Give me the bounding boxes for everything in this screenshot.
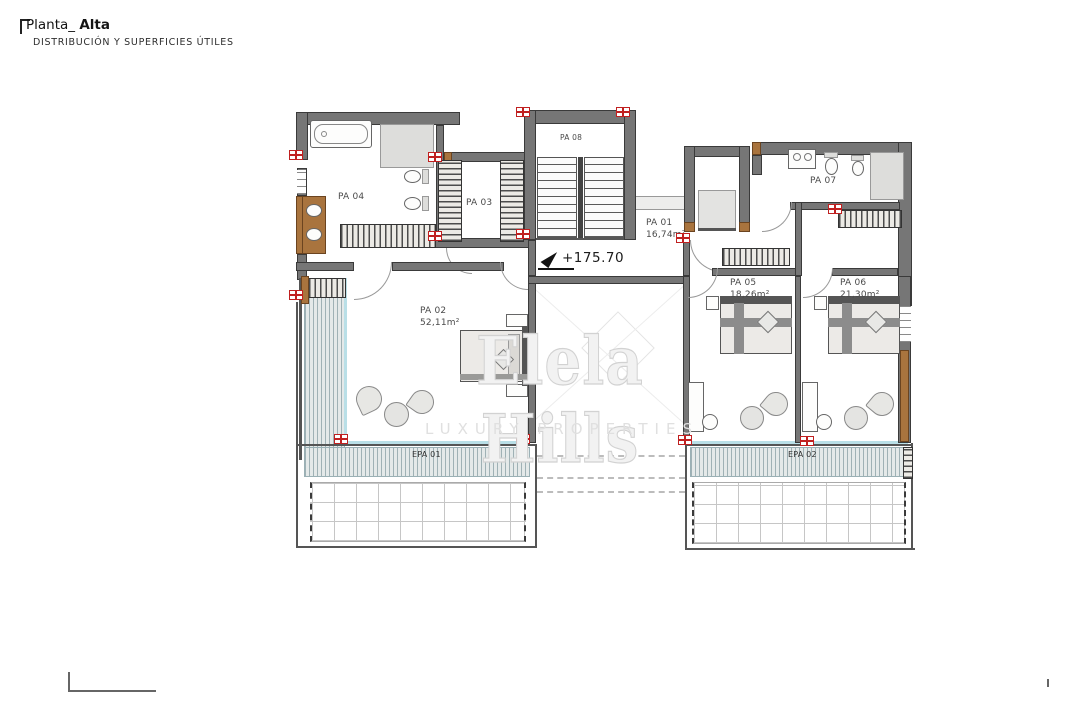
balcony-decking [304,278,345,458]
coffee-table-symbol [384,402,409,427]
room-name: PA 06 [840,278,880,290]
room-name: PA 05 [730,278,770,290]
watermark-tagline: LUXURY PROPERTIES [412,420,712,438]
terrace-boundary [685,548,915,550]
armchair-symbol [759,387,793,421]
window-symbol [899,306,911,342]
floor-plan-page: Planta_ Alta DISTRIBUCIÓN Y SUPERFICIES … [0,0,1080,702]
wall-segment [392,262,504,271]
terrace-boundary [296,302,298,548]
wood-cladding [752,142,761,155]
elevator-wall [684,146,695,232]
terrace-label-epa01: EPA 01 [412,450,441,460]
pergola-grid [692,482,906,544]
toilet-symbol [825,158,838,175]
wall-segment [795,202,802,276]
toilet-symbol [852,161,864,176]
shower-symbol [870,152,904,200]
registration-mark-icon [289,290,303,300]
room-name: PA 02 [420,306,460,318]
corner-mark [68,690,156,692]
registration-mark-icon [800,436,814,446]
bed-band [842,303,852,354]
desk-chair-symbol [816,414,832,430]
page-subtitle: DISTRIBUCIÓN Y SUPERFICIES ÚTILES [33,37,234,48]
bed-band [828,318,900,327]
stair-sill [536,238,624,240]
stair-flight [537,157,577,238]
bed-band [720,318,792,327]
level-arrow-base [538,268,574,270]
elevator-wall [739,146,750,232]
wall-segment [528,276,690,284]
level-arrow-icon [541,248,560,268]
stair-stringer [578,157,583,238]
room-label-pa04: PA 04 [338,192,364,204]
terrace-boundary [535,445,537,548]
elevator-car [698,190,736,230]
sink-symbol [306,228,322,241]
room-area: 21,30m² [840,290,880,302]
terrace-boundary [685,445,687,550]
terrace-label-epa02: EPA 02 [788,450,817,460]
door-arc [688,268,718,298]
bed-band [734,303,744,354]
page-title: Planta_ Alta [26,17,110,33]
basin-symbol [804,153,812,161]
wardrobe-symbol [438,160,462,242]
wall-segment [712,268,796,276]
armchair-symbol [352,382,387,417]
corridor-link [636,196,684,210]
page-title-emphasis: Alta [79,17,110,33]
registration-mark-icon [616,107,630,117]
registration-mark-icon [828,204,842,214]
corner-mark [68,672,70,692]
stair-flight [584,157,624,238]
wardrobe-symbol [340,224,436,248]
corner-tick [1047,679,1049,687]
wall-segment [832,268,898,276]
bed-footband [460,374,528,380]
window-symbol [297,170,306,194]
washbasin-cabinet [788,149,816,169]
page-title-prefix: Planta_ [26,17,75,33]
facade-sill [685,444,913,446]
sink-symbol [306,204,322,217]
projection-line [537,491,685,493]
glazing-line [344,278,347,442]
registration-mark-icon [678,435,692,445]
bathtub-drain [321,131,327,137]
basin-symbol [793,153,801,161]
shower-symbol [380,124,434,168]
desk-chair-symbol [702,414,718,430]
armchair-symbol [405,385,438,418]
balcony-bench [308,278,346,298]
wall-segment [795,276,801,443]
wall-segment [524,110,536,240]
wardrobe-symbol [722,248,790,266]
pergola-grid [310,482,526,542]
door-arc [500,262,528,290]
registration-mark-icon [676,233,690,243]
toilet-tank [422,169,429,184]
planter-symbol [903,447,913,479]
wall-segment [528,276,536,443]
coffee-table-symbol [740,406,764,430]
room-label-pa08: PA 08 [560,133,582,143]
bidet-symbol [404,197,421,210]
room-label-pa02: PA 02 52,11m² [420,306,460,329]
room-label-pa05: PA 05 18,26m² [730,278,770,301]
registration-mark-icon [428,231,442,241]
room-name: PA 01 [646,218,686,230]
bed-symbol [720,303,792,354]
registration-mark-icon [516,434,530,444]
projection-line [537,477,685,479]
projection-line [537,455,685,457]
facade-sill [296,444,537,446]
wood-cladding [900,350,909,442]
coffee-table-symbol [844,406,868,430]
room-label-pa06: PA 06 21,30m² [840,278,880,301]
level-marker: +175.70 [562,250,624,266]
registration-mark-icon [516,229,530,239]
wall-segment [528,240,536,276]
nightstand-symbol [706,296,719,310]
registration-mark-icon [289,150,303,160]
registration-mark-icon [516,107,530,117]
door-arc [762,202,792,232]
balcony-railing [299,278,302,460]
elevator-door [698,228,736,231]
terrace-boundary [296,546,537,548]
bidet-tank [422,196,429,211]
wall-segment [790,202,900,210]
room-label-pa07: PA 07 [810,176,836,188]
registration-mark-icon [428,152,442,162]
wall-segment [752,155,762,175]
room-area: 52,11m² [420,318,460,330]
armchair-symbol [865,387,899,421]
room-label-pa03: PA 03 [466,198,492,210]
registration-mark-icon [334,434,348,444]
room-area: 18,26m² [730,290,770,302]
door-arc [354,262,392,300]
wood-cladding [739,222,750,232]
toilet-symbol [404,170,421,183]
wall-segment [624,110,636,240]
wall-segment [296,262,354,271]
wardrobe-symbol [838,210,902,228]
nightstand-symbol [814,296,827,310]
bed-symbol [828,303,900,354]
door-arc [803,268,833,298]
